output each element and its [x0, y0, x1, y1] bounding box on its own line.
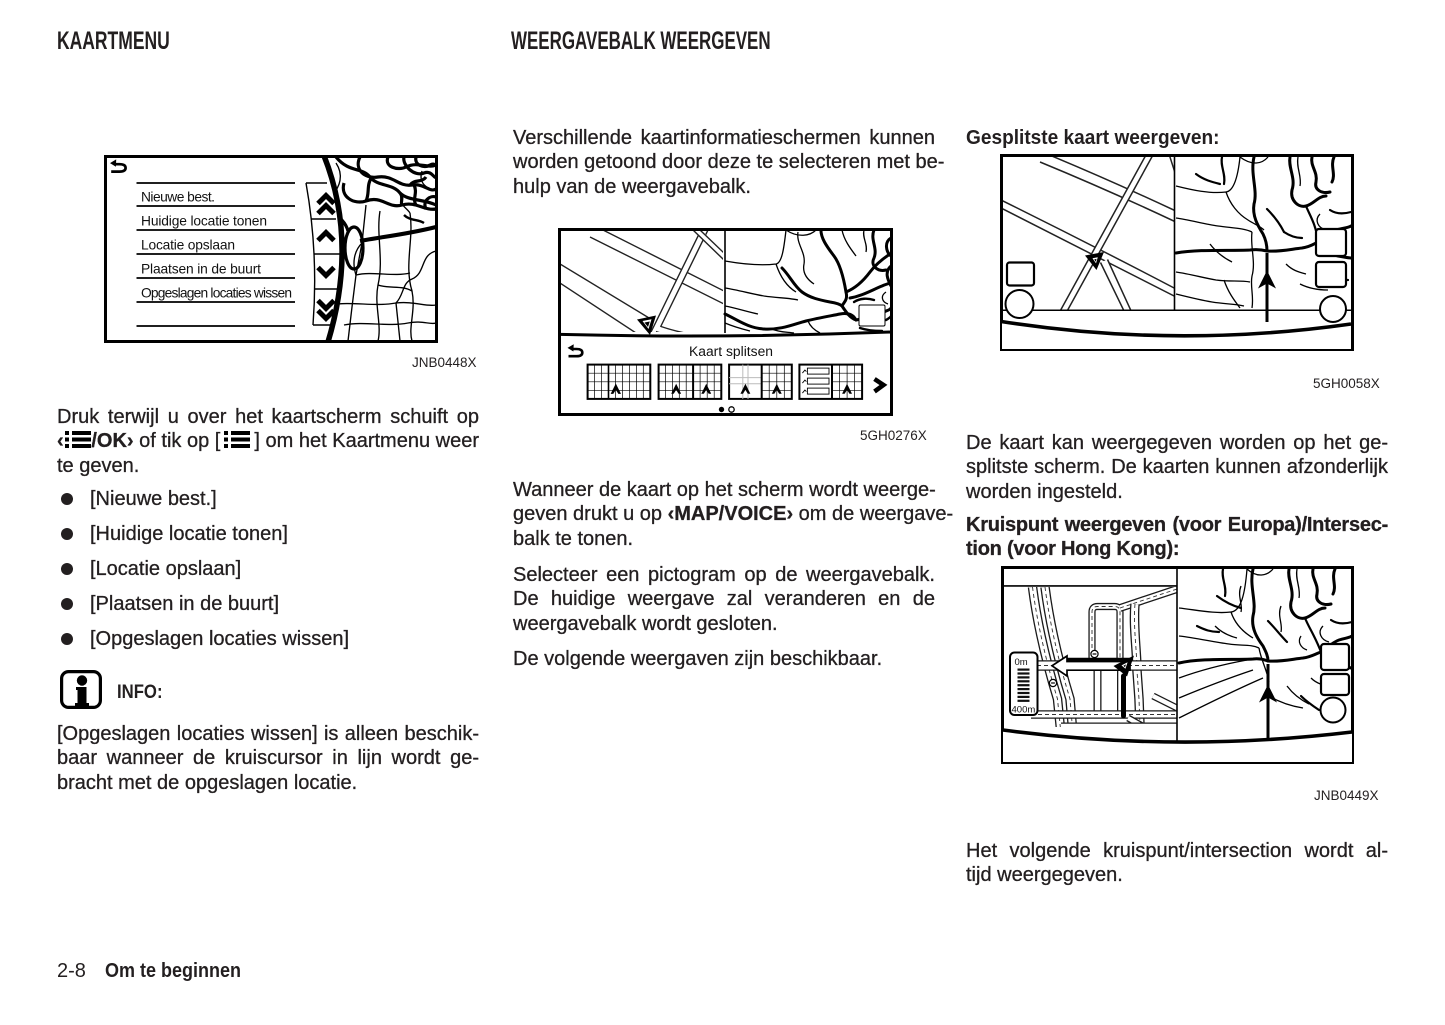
svg-text:Huidige locatie tonen: Huidige locatie tonen	[141, 213, 267, 228]
svg-text:Nieuwe best.: Nieuwe best.	[141, 189, 215, 204]
svg-text:Plaatsen in de buurt: Plaatsen in de buurt	[141, 261, 261, 276]
svg-text:Kaart splitsen: Kaart splitsen	[689, 344, 773, 359]
svg-text:400m: 400m	[1012, 705, 1036, 716]
svg-text:Locatie opslaan: Locatie opslaan	[141, 237, 235, 252]
svg-text:Opgeslagen locaties wissen: Opgeslagen locaties wissen	[141, 285, 292, 300]
svg-text:0m: 0m	[1015, 657, 1028, 668]
